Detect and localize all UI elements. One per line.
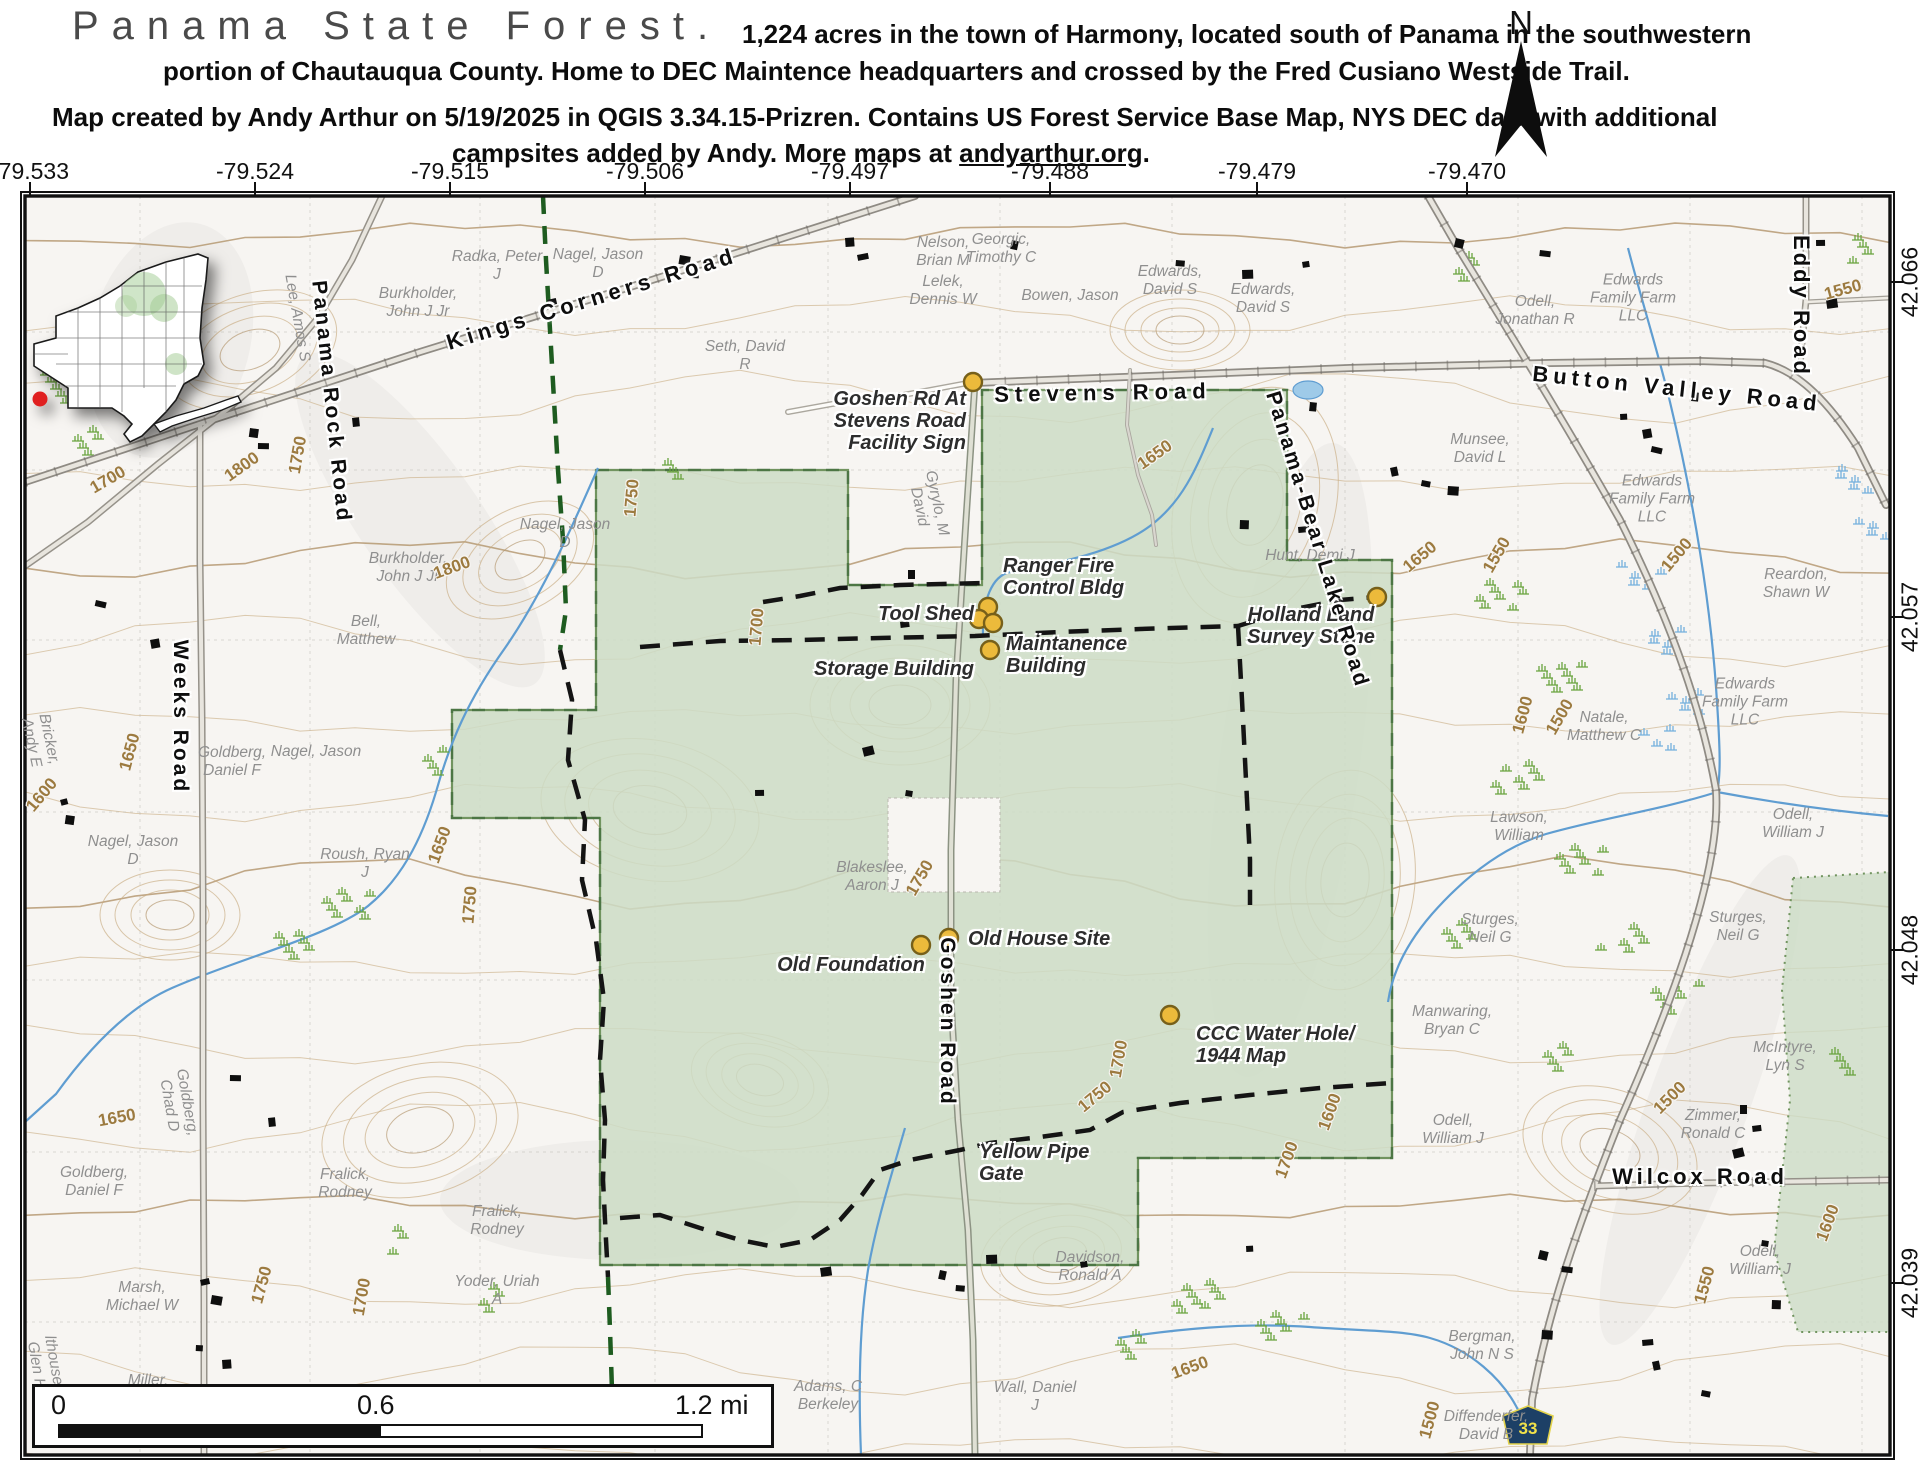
private-inholding <box>888 798 1000 892</box>
building <box>1620 414 1627 420</box>
building <box>196 1345 203 1351</box>
building <box>908 570 915 579</box>
building <box>258 443 269 449</box>
building <box>210 1295 222 1306</box>
building <box>1302 261 1310 268</box>
poi-marker <box>1368 588 1386 606</box>
building <box>1309 402 1317 412</box>
building <box>820 1266 832 1276</box>
building <box>150 638 160 648</box>
building <box>268 1117 276 1127</box>
building <box>845 237 855 247</box>
location-dot <box>33 392 48 407</box>
poi-marker <box>984 614 1002 632</box>
building <box>900 621 910 628</box>
poi-marker <box>1161 1006 1179 1024</box>
building <box>230 1075 241 1081</box>
scale-start: 0 <box>51 1390 66 1421</box>
building <box>986 1255 997 1264</box>
building <box>1642 1339 1653 1346</box>
building <box>1242 270 1253 279</box>
building <box>1740 1105 1747 1114</box>
building <box>1541 1330 1553 1340</box>
pond <box>1293 381 1323 399</box>
map-document: Panama State Forest. 1,224 acres in the … <box>0 0 1920 1484</box>
building <box>1752 1125 1762 1132</box>
building <box>955 1285 964 1292</box>
building <box>352 417 360 427</box>
scale-middle: 0.6 <box>357 1390 395 1421</box>
poi-marker <box>940 929 958 947</box>
scale-end: 1.2 mi <box>675 1390 749 1421</box>
poi-marker <box>964 373 982 391</box>
building <box>1246 1246 1253 1252</box>
building <box>1826 298 1838 308</box>
building <box>905 790 913 797</box>
building <box>65 815 75 825</box>
state-locator-inset <box>26 246 258 463</box>
building <box>1642 428 1652 438</box>
building <box>1816 240 1825 246</box>
building <box>1240 520 1249 529</box>
scale-bar-graphic <box>58 1424 703 1438</box>
building <box>1080 1261 1088 1268</box>
building <box>692 272 699 278</box>
route-shield-number: 33 <box>1519 1419 1538 1438</box>
poi-marker <box>912 936 930 954</box>
building <box>1691 392 1699 402</box>
building <box>1298 526 1309 533</box>
building <box>222 1359 232 1369</box>
building <box>755 790 764 796</box>
poi-marker <box>981 641 999 659</box>
map-canvas: 33 <box>0 0 1920 1484</box>
building <box>678 255 690 266</box>
building <box>1175 260 1184 267</box>
state-forest-parcel-east <box>1774 872 1890 1332</box>
building <box>1761 1240 1769 1247</box>
scale-bar: 0 0.6 1.2 mi <box>32 1384 774 1448</box>
building <box>1447 486 1459 496</box>
building <box>1772 1300 1781 1309</box>
